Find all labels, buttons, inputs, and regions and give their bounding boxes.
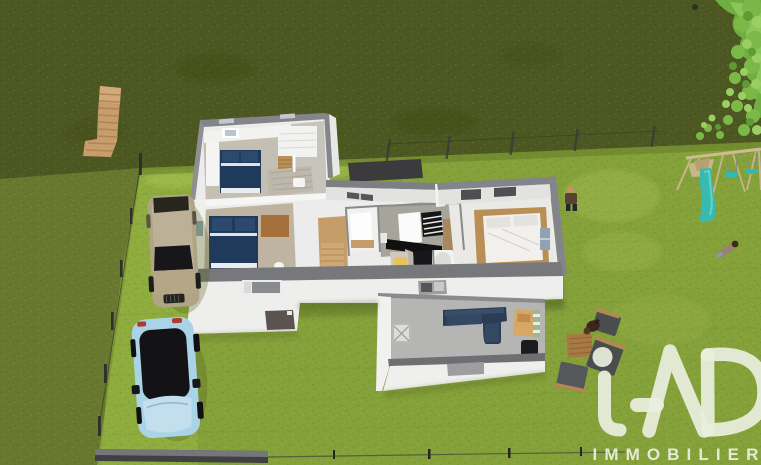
svg-text:IMMOBILIER: IMMOBILIER [593, 445, 761, 464]
